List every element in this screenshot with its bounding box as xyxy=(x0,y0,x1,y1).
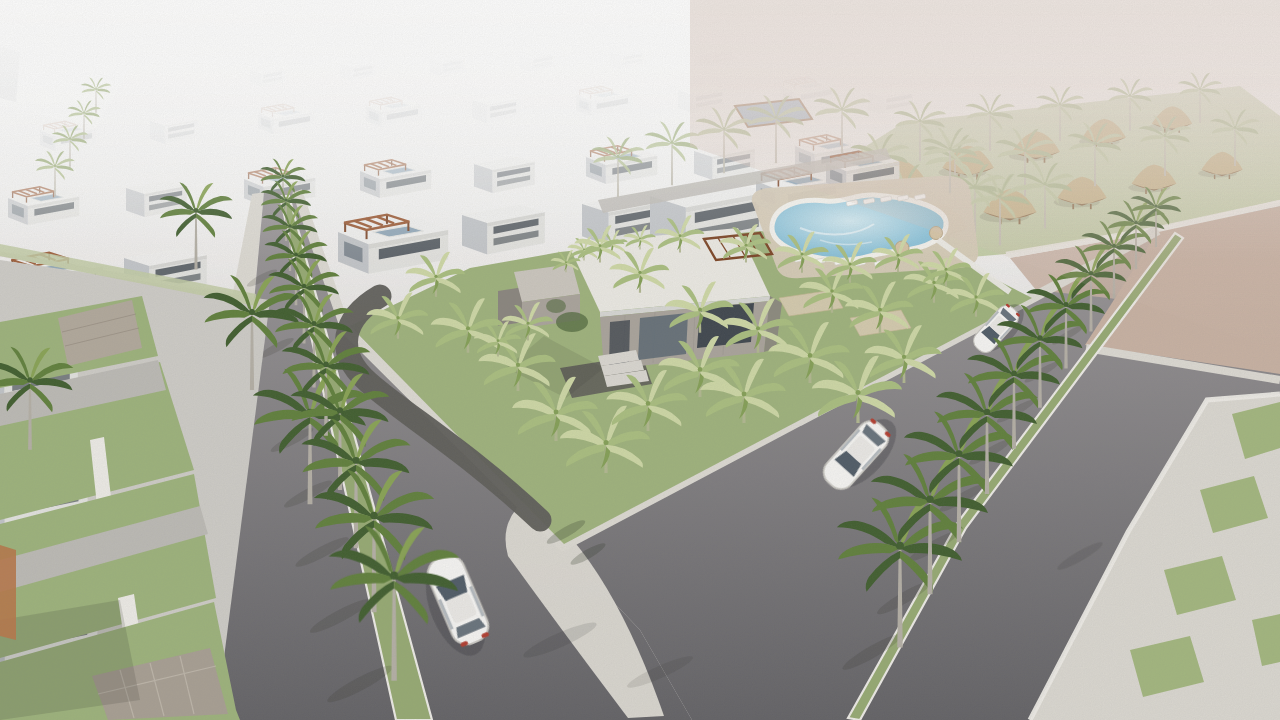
atmosphere xyxy=(0,0,1280,720)
film-grain xyxy=(0,0,1280,720)
render-viewport xyxy=(0,0,1280,720)
masterplan-render xyxy=(0,0,1280,720)
